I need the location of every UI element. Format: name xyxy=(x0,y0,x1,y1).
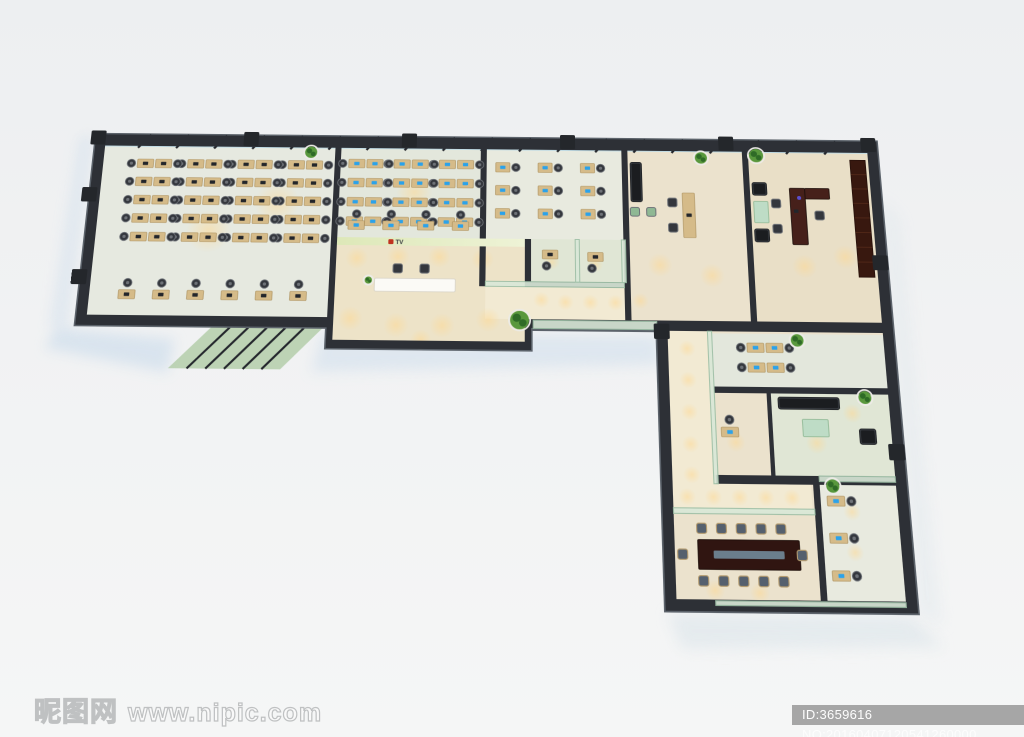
site-url-text: www.nipic.com xyxy=(128,699,322,727)
floorplan-3d-wrap: TV xyxy=(44,134,918,613)
stock-photo-page: TV 昵图网www.nipic.com ID:3659616 NO:201604… xyxy=(0,0,1024,737)
image-id-badge: ID:3659616 NO:20160407120541260000 xyxy=(792,705,1024,725)
site-watermark: 昵图网www.nipic.com xyxy=(34,690,322,729)
svg-text:TV: TV xyxy=(395,240,403,246)
site-logo-text: 昵图网 xyxy=(34,697,118,727)
floorplan-svg: TV xyxy=(44,134,918,613)
